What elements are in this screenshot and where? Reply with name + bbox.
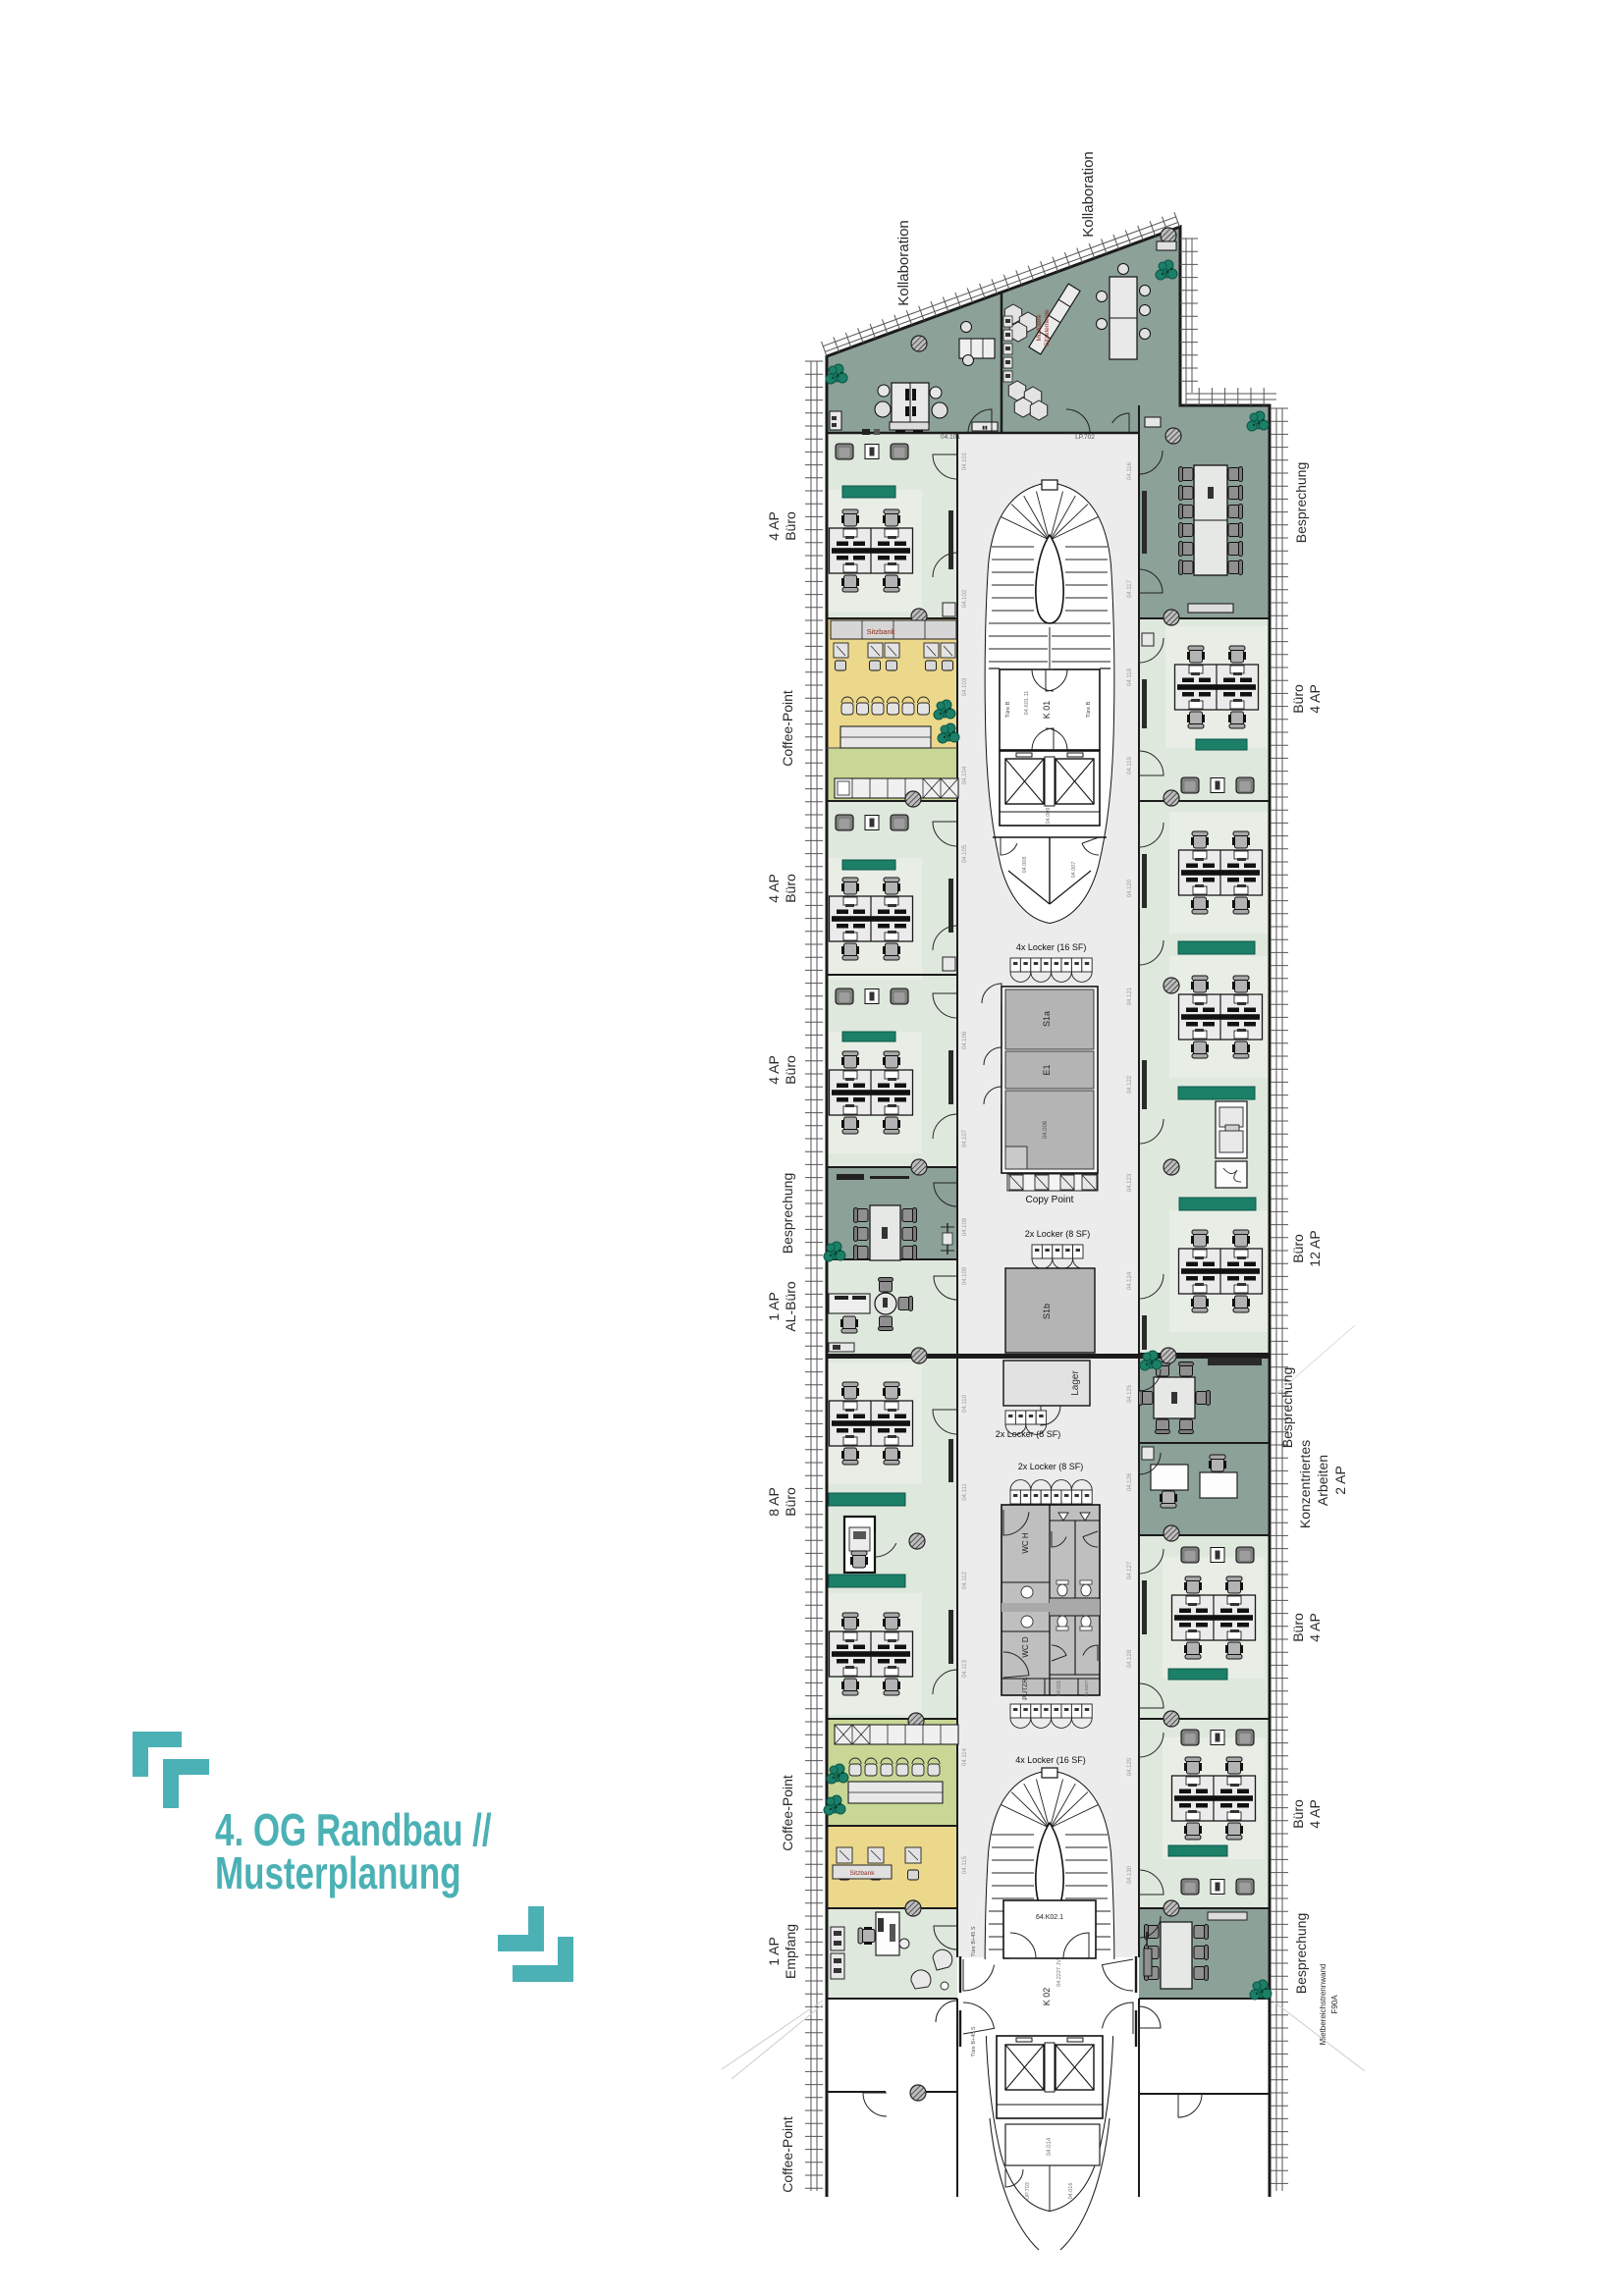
svg-text:Büro: Büro — [783, 874, 798, 903]
svg-text:Büro: Büro — [1290, 1613, 1306, 1642]
svg-text:4 AP: 4 AP — [1307, 684, 1323, 714]
svg-text:Empfang: Empfang — [783, 1924, 798, 1979]
svg-text:04.019: 04.019 — [1056, 1681, 1062, 1696]
svg-text:Kollaboration: Kollaboration — [1080, 151, 1097, 238]
svg-text:04.115: 04.115 — [962, 1855, 968, 1874]
svg-text:Coffee-Point: Coffee-Point — [780, 690, 795, 767]
svg-text:04.124: 04.124 — [1127, 1271, 1133, 1290]
svg-text:4 AP: 4 AP — [766, 1055, 782, 1085]
svg-text:Kollaboration: Kollaboration — [895, 220, 912, 306]
svg-text:04.128: 04.128 — [1127, 1649, 1133, 1668]
svg-text:4x Locker (16 SF): 4x Locker (16 SF) — [1016, 942, 1087, 952]
svg-text:LP.702: LP.702 — [1075, 434, 1095, 441]
svg-text:Konzentriertes: Konzentriertes — [1297, 1440, 1313, 1528]
svg-text:▮▮: ▮▮ — [982, 425, 988, 431]
svg-text:4x Locker (16 SF): 4x Locker (16 SF) — [1015, 1755, 1086, 1765]
svg-text:04.130: 04.130 — [1127, 1865, 1133, 1884]
svg-text:Mietbereichstrennwand: Mietbereichstrennwand — [1319, 1964, 1327, 2046]
svg-text:Büro: Büro — [783, 1487, 798, 1517]
svg-text:Büro: Büro — [1290, 1234, 1306, 1263]
svg-text:04.101: 04.101 — [941, 434, 960, 441]
svg-text:12 AP: 12 AP — [1307, 1230, 1323, 1266]
svg-text:64.K02.1: 64.K02.1 — [1036, 1914, 1063, 1921]
svg-text:4 AP: 4 AP — [1307, 1799, 1323, 1829]
svg-text:04.123: 04.123 — [1127, 1173, 1133, 1192]
svg-text:2x Locker (8 SF): 2x Locker (8 SF) — [996, 1429, 1061, 1439]
svg-text:04.016: 04.016 — [1068, 2183, 1074, 2200]
svg-text:Türe B+45 S: Türe B+45 S — [971, 2026, 977, 2056]
svg-text:S1b: S1b — [1042, 1304, 1052, 1319]
svg-text:2x Locker (8 SF): 2x Locker (8 SF) — [1025, 1229, 1091, 1239]
svg-text:Arbeiten: Arbeiten — [1315, 1455, 1330, 1506]
svg-text:1 AP: 1 AP — [766, 1937, 782, 1966]
svg-text:04.106: 04.106 — [962, 1031, 968, 1049]
svg-text:04.107: 04.107 — [962, 1129, 968, 1148]
svg-text:K 02: K 02 — [1042, 1988, 1052, 2006]
svg-text:04.125: 04.125 — [1127, 1384, 1133, 1403]
svg-text:04.K01.11: 04.K01.11 — [1024, 691, 1030, 716]
svg-text:04.117: 04.117 — [1127, 579, 1133, 598]
svg-text:04.126: 04.126 — [1127, 1472, 1133, 1491]
svg-text:WC H: WC H — [1021, 1532, 1030, 1554]
svg-text:Sitzbank: Sitzbank — [867, 627, 895, 636]
svg-text:04.118: 04.118 — [1127, 667, 1133, 686]
svg-text:S1a: S1a — [1042, 1011, 1052, 1027]
svg-text:04.116: 04.116 — [1127, 461, 1133, 480]
svg-text:4 AP: 4 AP — [766, 511, 782, 541]
svg-text:Büro: Büro — [783, 511, 798, 541]
svg-text:8 AP: 8 AP — [766, 1487, 782, 1517]
svg-text:Musterplanung: Musterplanung — [215, 1847, 460, 1898]
svg-text:04.112: 04.112 — [962, 1571, 968, 1589]
svg-text:Besprechung: Besprechung — [780, 1173, 795, 1255]
svg-text:Türe B: Türe B — [1005, 701, 1011, 718]
svg-text:Lager: Lager — [1070, 1370, 1081, 1396]
svg-text:Büro: Büro — [1290, 684, 1306, 714]
svg-text:Büro: Büro — [783, 1055, 798, 1085]
svg-text:Türe B+45 S: Türe B+45 S — [971, 1926, 977, 1956]
svg-text:04.109: 04.109 — [962, 1266, 968, 1285]
svg-text:PUTZR.: PUTZR. — [1022, 1677, 1029, 1700]
svg-text:04.102: 04.102 — [962, 589, 968, 608]
svg-text:04.009: 04.009 — [1046, 808, 1052, 825]
svg-text:Sitzelemente: Sitzelemente — [1044, 309, 1051, 347]
svg-text:04.122: 04.122 — [1127, 1075, 1133, 1094]
svg-text:2 AP: 2 AP — [1332, 1466, 1348, 1495]
svg-text:04.114: 04.114 — [962, 1747, 968, 1766]
svg-text:K 01: K 01 — [1042, 701, 1052, 720]
svg-text:WC D: WC D — [1021, 1636, 1030, 1658]
svg-text:04.006: 04.006 — [1043, 1120, 1049, 1139]
svg-text:Copy Point: Copy Point — [1026, 1195, 1074, 1205]
svg-text:04.008: 04.008 — [1022, 857, 1028, 874]
svg-text:04.129: 04.129 — [1127, 1757, 1133, 1776]
svg-text:F90A: F90A — [1330, 1995, 1339, 2014]
svg-text:04.104: 04.104 — [962, 766, 968, 784]
svg-text:04.120: 04.120 — [1127, 879, 1133, 897]
svg-text:Besprechung: Besprechung — [1293, 1913, 1309, 1995]
svg-text:Coffee-Point: Coffee-Point — [780, 2116, 795, 2193]
svg-text:04.103: 04.103 — [962, 677, 968, 696]
svg-text:04.007: 04.007 — [1071, 862, 1077, 879]
svg-text:04.014: 04.014 — [1047, 2137, 1053, 2156]
svg-text:04.121: 04.121 — [1127, 987, 1133, 1005]
svg-text:Coffee-Point: Coffee-Point — [780, 1775, 795, 1851]
svg-text:04.110: 04.110 — [962, 1394, 968, 1413]
svg-text:1 AP: 1 AP — [766, 1292, 782, 1321]
svg-text:04.108: 04.108 — [962, 1217, 968, 1236]
svg-text:04.105: 04.105 — [962, 844, 968, 863]
svg-text:04.2227 JV: 04.2227 JV — [1056, 1959, 1062, 1987]
svg-text:Modulare: Modulare — [1036, 314, 1043, 341]
svg-text:04.111: 04.111 — [962, 1483, 968, 1501]
svg-text:04.119: 04.119 — [1127, 756, 1133, 774]
svg-text:04.K02?: 04.K02? — [1084, 1680, 1089, 1696]
svg-text:4 AP: 4 AP — [1307, 1613, 1323, 1642]
svg-text:UP.703: UP.703 — [1025, 2182, 1031, 2200]
svg-text:04.113: 04.113 — [962, 1659, 968, 1678]
svg-text:2x Locker (8 SF): 2x Locker (8 SF) — [1018, 1462, 1084, 1471]
svg-text:E1: E1 — [1042, 1064, 1052, 1075]
svg-text:Sitzbank: Sitzbank — [850, 1870, 876, 1877]
svg-text:04.127: 04.127 — [1127, 1561, 1133, 1579]
svg-text:Besprechung: Besprechung — [1293, 462, 1309, 544]
svg-text:04.101: 04.101 — [962, 452, 968, 470]
svg-text:4 AP: 4 AP — [766, 874, 782, 903]
svg-text:Türe B: Türe B — [1086, 701, 1092, 718]
svg-text:Büro: Büro — [1290, 1799, 1306, 1829]
svg-text:AL-Büro: AL-Büro — [783, 1281, 798, 1332]
